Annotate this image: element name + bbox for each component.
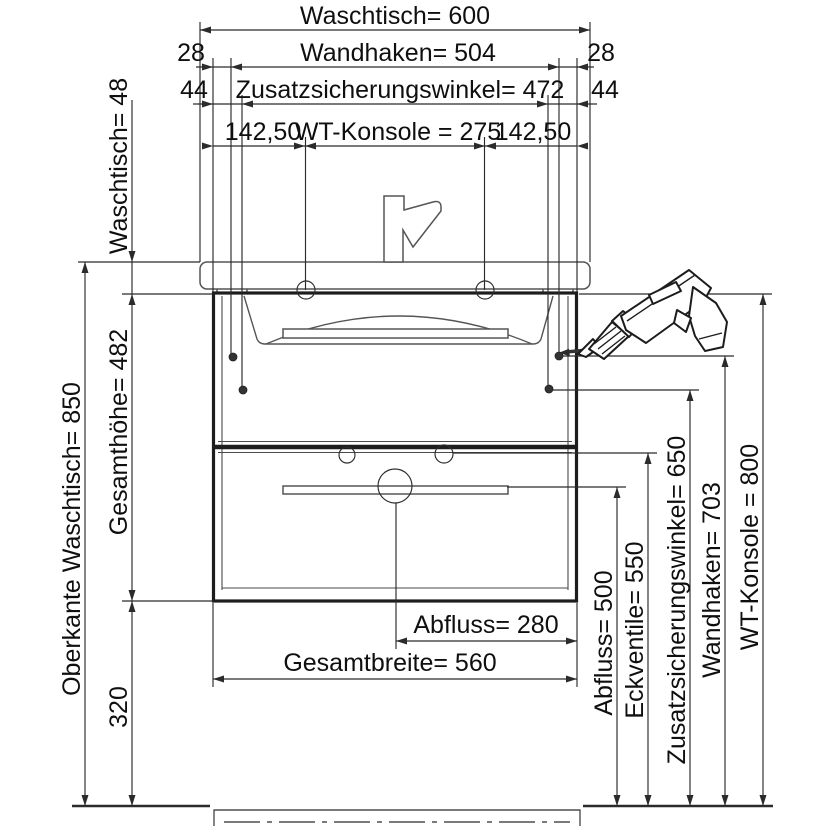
basin-slab (200, 262, 590, 289)
label-zusatzwinkel-650: Zusatzsicherungswinkel= 650 (663, 436, 691, 765)
label-wtkonsole-800: WT-Konsole = 800 (736, 444, 764, 650)
label-konsole-offset-right: 142,50 (495, 118, 571, 146)
vanity-cabinet (214, 293, 577, 601)
label-konsole-offset-left: 142,50 (225, 118, 301, 146)
label-gesamtbreite-560: Gesamtbreite= 560 (283, 649, 496, 677)
technical-drawing: Waschtisch= 600 Wandhaken= 504 28 28 Zus… (0, 0, 840, 840)
label-oberkante-850: Oberkante Waschtisch= 850 (58, 382, 86, 696)
drawer-handle-top (283, 329, 508, 338)
label-waschtisch-600: Waschtisch= 600 (300, 2, 490, 30)
label-eckventile-550: Eckventile= 550 (621, 541, 649, 718)
drill-icon (578, 270, 727, 359)
label-zusatzwinkel-472: Zusatzsicherungswinkel= 472 (236, 76, 565, 104)
label-abfluss-500: Abfluss= 500 (590, 570, 618, 715)
label-wandhaken-504: Wandhaken= 504 (300, 39, 496, 67)
label-abfluss-280: Abfluss= 280 (413, 611, 558, 639)
label-offset-44-right: 44 (591, 76, 619, 104)
label-waschtisch-48: Waschtisch= 48 (105, 78, 133, 254)
label-320: 320 (105, 686, 133, 728)
vanity-dimension-diagram: Waschtisch= 600 Wandhaken= 504 28 28 Zus… (0, 0, 840, 840)
wall-hook-left (229, 353, 237, 361)
faucet-icon (384, 196, 441, 262)
plinth-outline (214, 810, 580, 826)
label-gesamthoehe-482: Gesamthöhe= 482 (105, 329, 133, 535)
label-offset-28-right: 28 (587, 39, 615, 67)
label-offset-28-left: 28 (177, 39, 205, 67)
floor (72, 806, 773, 826)
label-offset-44-left: 44 (180, 76, 208, 104)
label-konsole-275: WT-Konsole = 275 (295, 118, 501, 146)
label-wandhaken-703: Wandhaken= 703 (698, 482, 726, 678)
safety-bracket-right (545, 385, 553, 393)
safety-bracket-left (239, 386, 247, 394)
drawer-handle-bottom (283, 486, 508, 494)
